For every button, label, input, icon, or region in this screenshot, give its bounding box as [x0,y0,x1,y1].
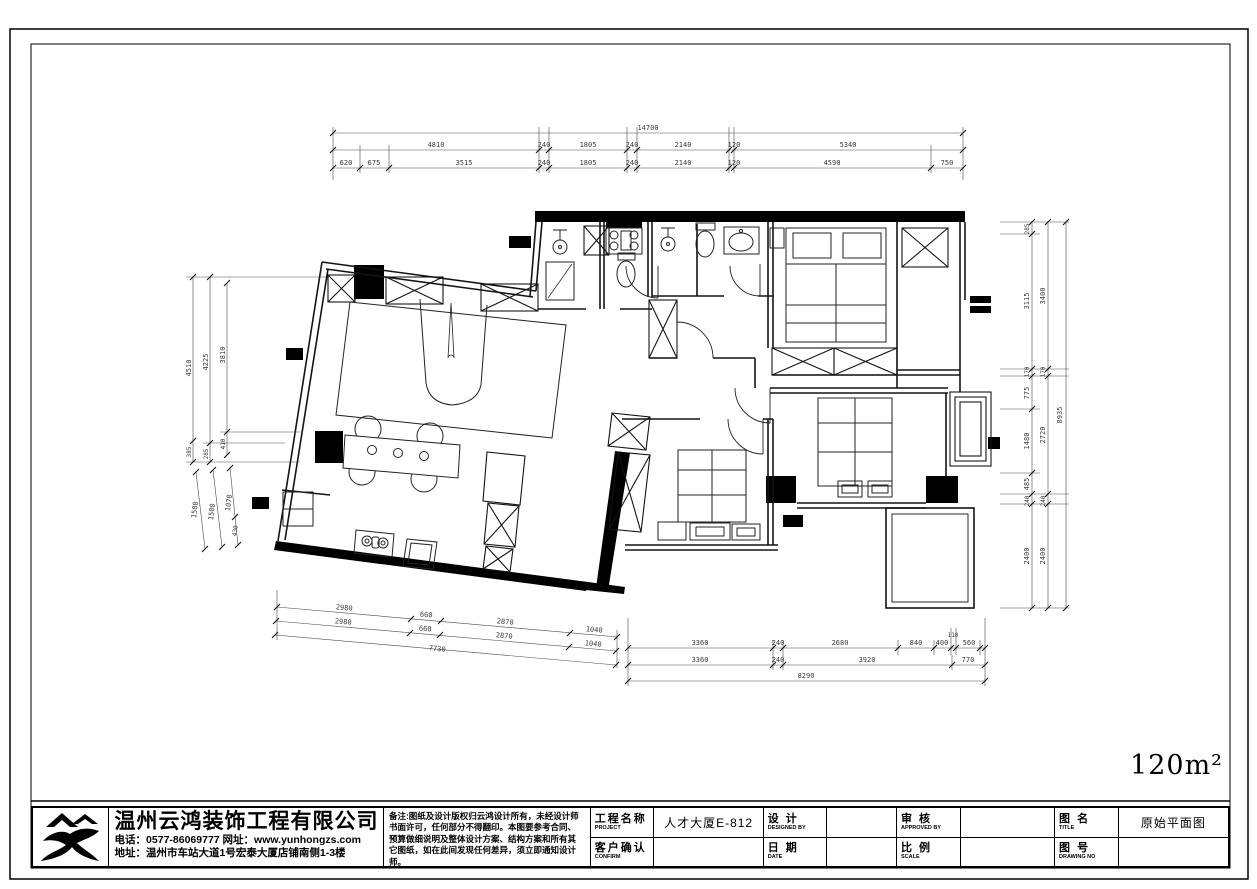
dim-label: 430 [231,525,239,537]
dim-label: 400 [936,639,949,647]
dim-label: 5340 [840,141,857,149]
dim-label: 2980 [334,617,351,626]
design-label: 设 计 [768,813,823,825]
dim-label: 170 [1040,366,1047,377]
bay-window [950,392,991,466]
dim-label: 2400 [1039,548,1047,565]
values-project-confirm: 人才大厦E-812 [654,808,763,866]
drawing-sheet: 14700 4810 240 1805 240 2140 120 5340 62… [0,0,1257,889]
dwgno-label-cell: 图 号 DRAWING NO [1055,838,1118,867]
dim-label: 14700 [637,124,658,132]
values-design-date [827,808,897,866]
dim-label: 240 [626,141,639,149]
wardrobe-box [772,348,834,375]
design-label-cell: 设 计 DESIGNED BY [764,808,827,838]
dim-label: 2870 [496,617,513,626]
dim-label: 1480 [1023,433,1031,450]
dim-label: 8290 [798,672,815,680]
dimension-labels: 14700 4810 240 1805 240 2140 120 5340 62… [185,124,1064,680]
washbasin-counter [606,228,642,254]
dim-label: 120 [728,141,741,149]
dim-label: 675 [368,159,381,167]
window-box [328,275,355,302]
dining-table [343,435,460,478]
design-sublabel: DESIGNED BY [768,825,823,832]
title-block: 温州云鸿装饰工程有限公司 电话：0577-86069777 网址：www.yun… [31,806,1230,868]
title-label: 图 名 [1059,813,1114,825]
dim-label: 3400 [1039,288,1047,305]
date-label-cell: 日 期 DATE [764,838,827,867]
company-logo-icon [39,810,101,864]
labels-approve-scale: 审 核 APPROVED BY 比 例 SCALE [897,808,961,866]
toilet-2 [696,223,715,257]
dim-label: 560 [963,639,976,647]
labels-project-confirm: 工程名称 PROJECT 客户确认 CONFIRM [591,808,655,866]
design-value-cell [827,808,896,838]
project-label: 工程名称 [595,813,650,825]
dim-label: 240 [1040,495,1047,506]
floor-plan [252,211,1000,608]
confirm-sublabel: CONFIRM [595,854,650,861]
dim-label: 3360 [692,639,709,647]
window-box [584,226,609,255]
dim-label: 1805 [580,141,597,149]
scale-label-cell: 比 例 SCALE [897,838,960,867]
labels-design-date: 设 计 DESIGNED BY 日 期 DATE [764,808,828,866]
dim-label: 2680 [832,639,849,647]
dim-label: 3515 [456,159,473,167]
dim-label: 285 [1024,223,1031,234]
dim-label: 2140 [675,141,692,149]
dim-label: 2980 [335,603,352,612]
company-address: 地址：温州市车站大道1号宏泰大厦店铺南侧1-3楼 [115,847,379,860]
dim-label: 3920 [859,656,876,664]
dim-label: 660 [420,610,433,619]
wardrobe-box [834,348,897,375]
dim-label: 7730 [428,644,445,653]
scale-sublabel: SCALE [901,854,956,861]
area-label: 120m² [1095,750,1223,781]
company-phone: 电话：0577-86069777 网址：www.yunhongzs.com [115,834,379,847]
approve-sublabel: APPROVED BY [901,825,956,832]
company-name: 温州云鸿装饰工程有限公司 [115,810,379,834]
dim-label: 1070 [224,494,234,512]
date-value-cell [827,838,896,867]
dim-label: 3360 [692,656,709,664]
approve-label-cell: 审 核 APPROVED BY [897,808,960,838]
kitchen-counter [483,452,525,505]
dim-label: 285 [203,448,210,459]
dim-label: 2140 [675,159,692,167]
dim-label: 660 [419,624,432,633]
dim-label: 240 [1024,495,1031,506]
project-label-cell: 工程名称 PROJECT [591,808,654,838]
stair-u-shape [420,299,487,405]
bed-master [770,228,886,342]
window-box [902,228,948,267]
balcony [886,508,974,608]
dim-label: 385 [186,446,193,457]
title-sublabel: TITLE [1059,825,1114,832]
values-approve-scale [961,808,1055,866]
date-sublabel: DATE [768,854,823,861]
scale-label: 比 例 [901,842,956,854]
drawing-title-value: 原始平面图 [1141,814,1206,831]
dim-label: 2870 [495,631,512,640]
dim-label: 4510 [185,360,193,377]
company-cell: 温州云鸿装饰工程有限公司 电话：0577-86069777 网址：www.yun… [109,808,384,866]
logo-cell [33,808,109,866]
dim-label: 4225 [202,354,210,371]
living-carpet [336,302,566,438]
scale-value-cell [961,838,1054,867]
project-value: 人才大厦E-812 [664,814,753,831]
approve-value-cell [961,808,1054,838]
confirm-value-cell [654,838,762,867]
project-sublabel: PROJECT [595,825,650,832]
dim-label: 3115 [1023,293,1031,310]
confirm-label: 客户确认 [595,842,650,854]
dim-label: 1500 [190,501,200,519]
dim-label: 170 [1024,366,1031,377]
dim-label: 620 [340,159,353,167]
approve-label: 审 核 [901,813,956,825]
window-box [484,503,519,547]
date-label: 日 期 [768,842,823,854]
project-value-cell: 人才大厦E-812 [654,808,762,838]
title-value-cell: 原始平面图 [1119,808,1228,838]
bed-third [658,450,760,540]
dim-label: 1500 [207,503,217,521]
dim-label: 240 [626,159,639,167]
dim-label: 3810 [219,347,227,364]
labels-title-dwgno: 图 名 TITLE 图 号 DRAWING NO [1055,808,1119,866]
bed-second [818,398,892,497]
dim-label: 8935 [1056,407,1064,424]
dim-label: 840 [910,639,923,647]
dim-label: 410 [220,438,227,449]
dim-label: 1040 [585,625,602,634]
dim-label: 240 [772,639,785,647]
values-title-dwgno: 原始平面图 [1119,808,1228,866]
window-box [649,300,677,358]
title-label-cell: 图 名 TITLE [1055,808,1118,838]
shower-2 [661,228,675,251]
notes-cell: 备注:图纸及设计版权归云鸿设计所有，未经设计师 书面许可，任何部分不得翻印。本图… [384,808,591,866]
dim-label: 775 [1023,387,1031,400]
bath-sink [724,227,759,254]
dim-label: 770 [962,656,975,664]
dim-label: 4810 [428,141,445,149]
dim-label: 4590 [824,159,841,167]
dim-label: 485 [1023,478,1031,491]
dim-label: 1805 [580,159,597,167]
dim-label: 750 [941,159,954,167]
dim-label: 120 [728,159,741,167]
dwgno-label: 图 号 [1059,842,1114,854]
dwgno-sublabel: DRAWING NO [1059,854,1114,861]
dim-label: 2400 [1023,548,1031,565]
dim-label: 1040 [584,639,601,648]
confirm-label-cell: 客户确认 CONFIRM [591,838,654,867]
dim-label: 240 [538,159,551,167]
dim-label: 2720 [1039,427,1047,444]
dim-label: 240 [538,141,551,149]
dwgno-value-cell [1119,838,1228,867]
window-box [483,546,513,572]
dim-label: 240 [772,656,785,664]
dim-label: 110 [948,632,959,639]
shower-1 [546,230,574,300]
